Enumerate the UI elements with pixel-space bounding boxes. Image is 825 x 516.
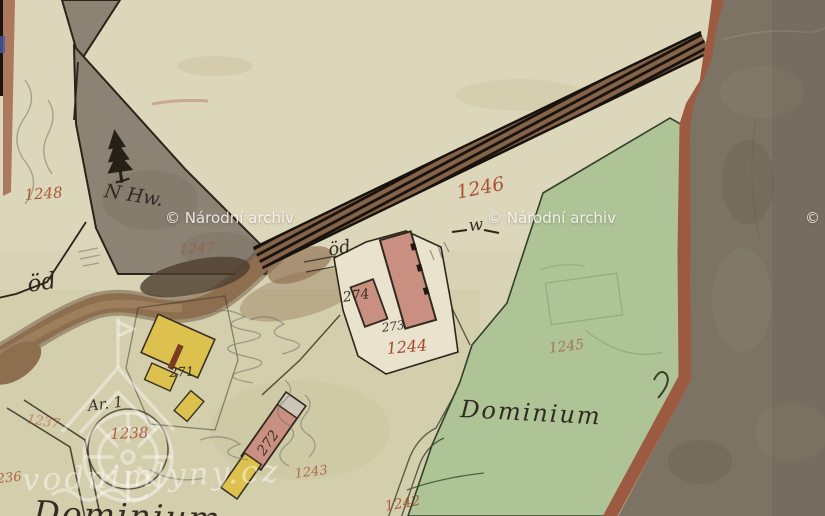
blue-mark: [0, 36, 5, 53]
paper-stain: [177, 56, 253, 76]
map-artwork: [0, 0, 825, 516]
forest-shade: [102, 170, 198, 230]
map-viewer-canvas[interactable]: 1248N Hw.124712461245Dominium12441243124…: [0, 0, 825, 516]
